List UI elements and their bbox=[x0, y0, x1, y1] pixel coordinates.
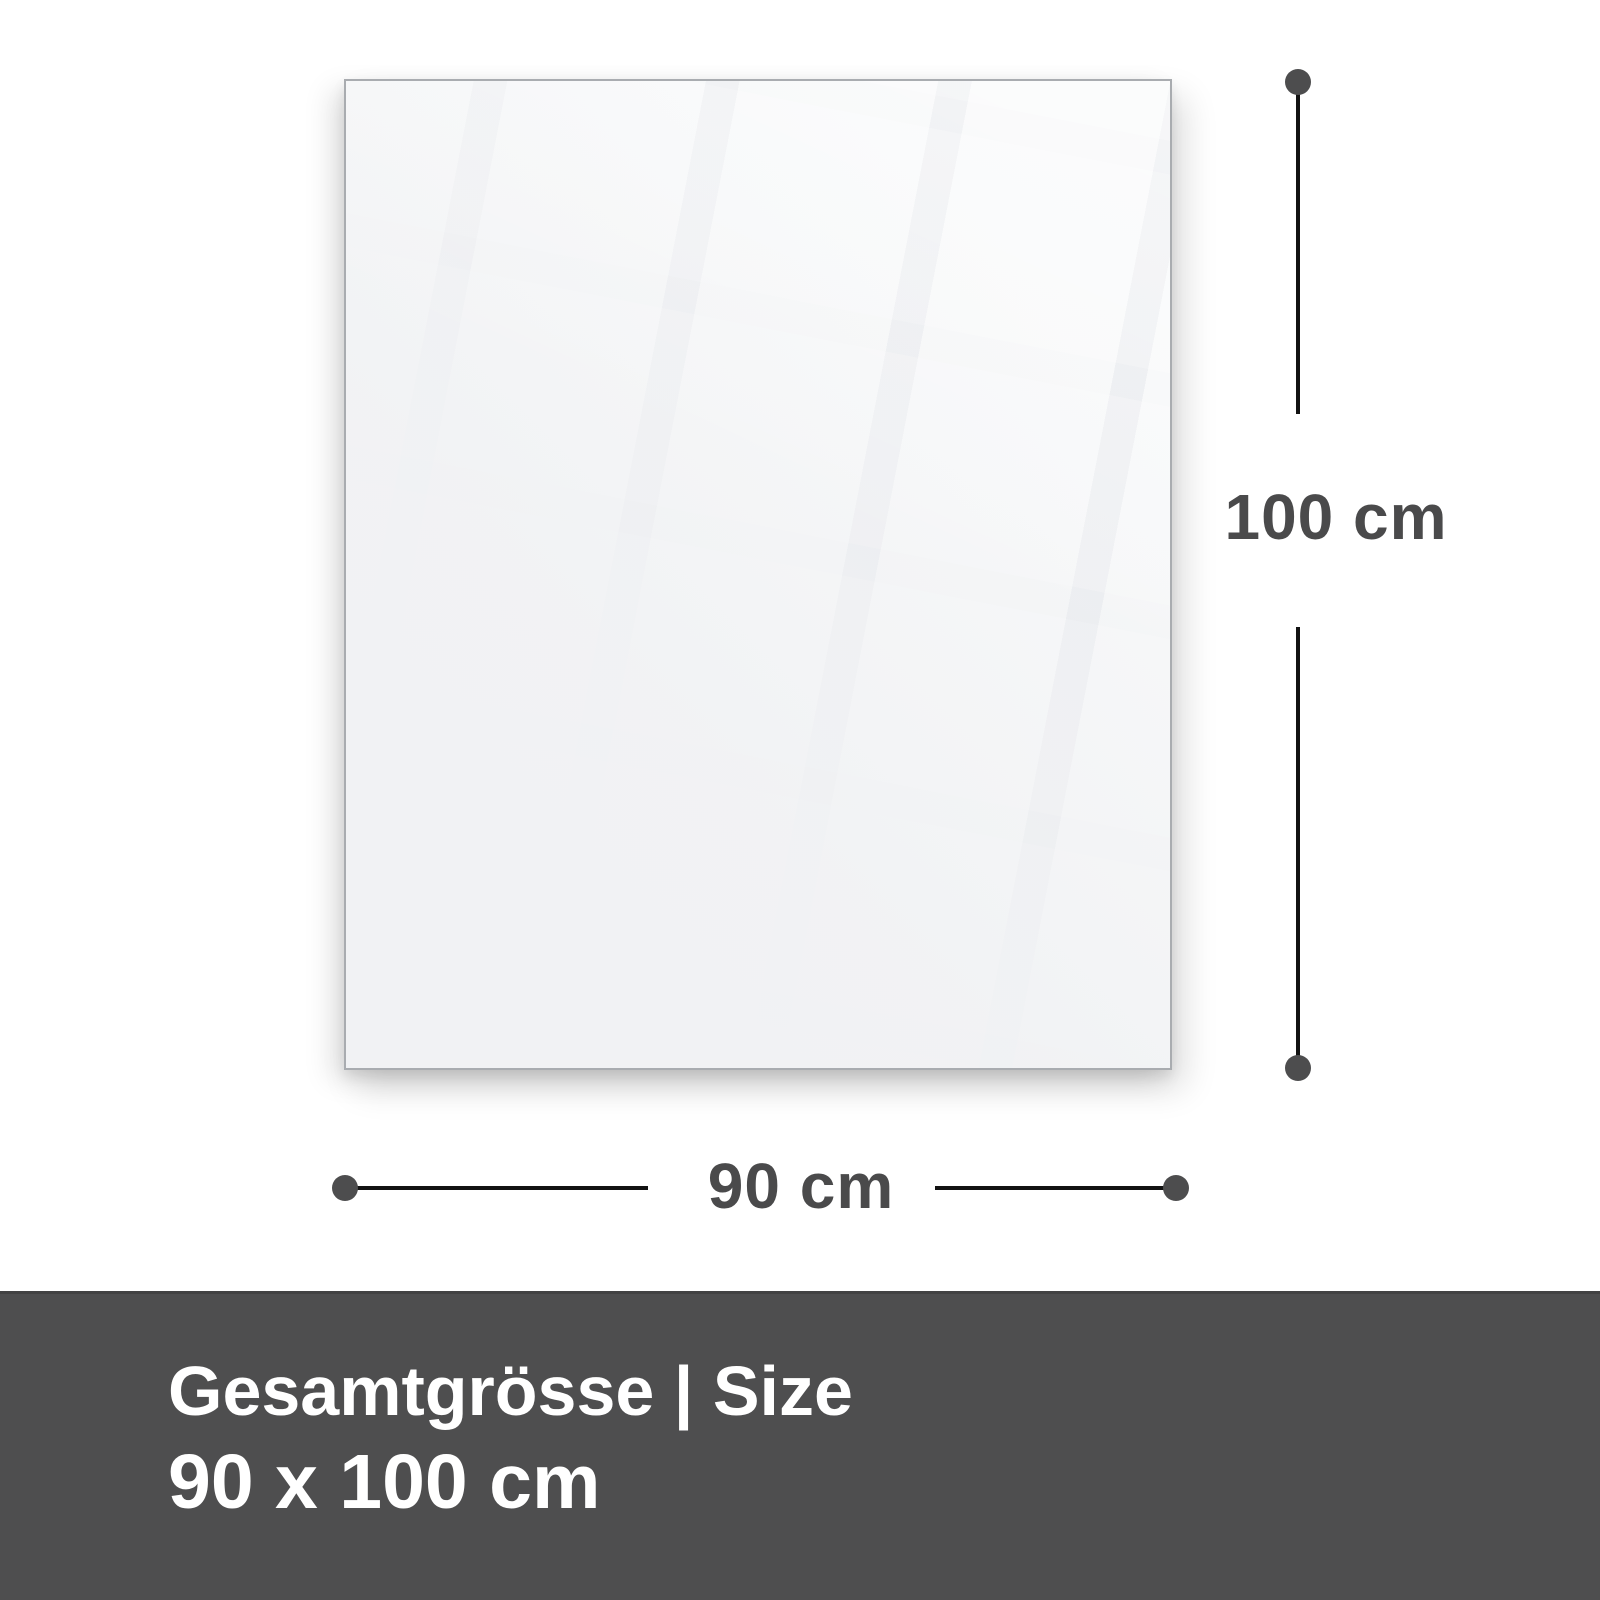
size-diagram: 100 cm 90 cm Gesamtgrösse | Size 90 x 10… bbox=[0, 0, 1600, 1600]
width-dimension-endpoint-left bbox=[332, 1175, 358, 1201]
height-dimension-line-upper bbox=[1296, 84, 1300, 414]
banner-size-value: 90 x 100 cm bbox=[168, 1444, 600, 1521]
size-info-banner: Gesamtgrösse | Size 90 x 100 cm bbox=[0, 1291, 1600, 1600]
height-dimension-label: 100 cm bbox=[1224, 480, 1447, 554]
height-dimension-endpoint-bottom bbox=[1285, 1055, 1311, 1081]
width-dimension-label: 90 cm bbox=[708, 1149, 894, 1223]
product-panel bbox=[344, 79, 1172, 1070]
glass-sheen bbox=[346, 81, 1170, 1068]
banner-title: Gesamtgrösse | Size bbox=[168, 1356, 853, 1426]
width-dimension-endpoint-right bbox=[1163, 1175, 1189, 1201]
height-dimension-line-lower bbox=[1296, 627, 1300, 1068]
width-dimension-line-right bbox=[935, 1186, 1176, 1190]
height-dimension-endpoint-top bbox=[1285, 69, 1311, 95]
width-dimension-line-left bbox=[345, 1186, 648, 1190]
